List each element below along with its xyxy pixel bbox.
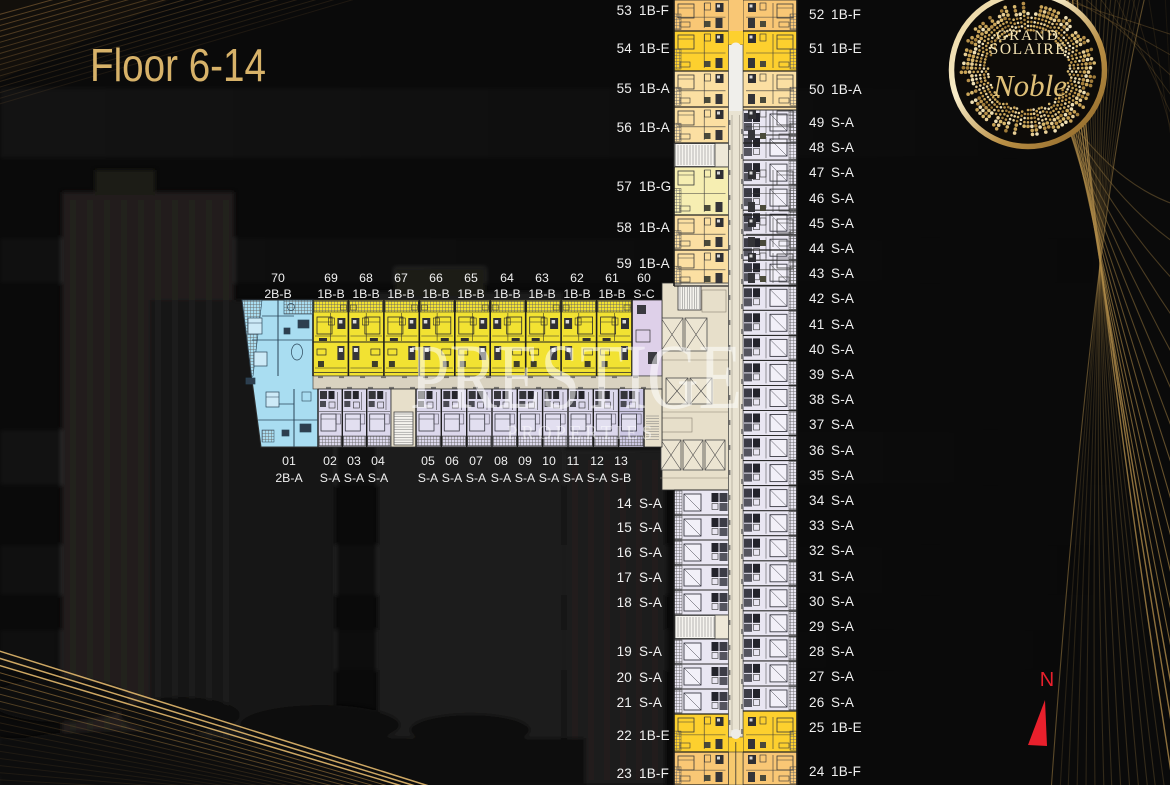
svg-text:S-A: S-A	[831, 191, 854, 206]
svg-text:32: 32	[809, 543, 824, 558]
svg-text:13: 13	[614, 454, 628, 468]
svg-text:34: 34	[809, 493, 825, 508]
svg-text:1B-A: 1B-A	[639, 256, 670, 271]
svg-text:Noble: Noble	[992, 68, 1067, 103]
svg-text:S-A: S-A	[831, 417, 854, 432]
svg-text:1B-B: 1B-B	[317, 287, 344, 301]
svg-text:1B-F: 1B-F	[639, 766, 669, 781]
svg-text:PROPERTIES: PROPERTIES	[507, 422, 656, 444]
svg-text:36: 36	[809, 443, 824, 458]
svg-text:SOLAIRE: SOLAIRE	[990, 41, 1067, 58]
svg-text:1B-A: 1B-A	[831, 82, 862, 97]
svg-text:37: 37	[809, 417, 824, 432]
svg-text:1B-A: 1B-A	[639, 220, 670, 235]
svg-text:S-C: S-C	[633, 287, 654, 301]
svg-text:14: 14	[617, 496, 633, 511]
svg-text:S-A: S-A	[831, 392, 854, 407]
svg-text:S-A: S-A	[831, 216, 854, 231]
svg-text:70: 70	[271, 271, 285, 285]
svg-text:N: N	[1040, 669, 1054, 691]
svg-text:S-A: S-A	[491, 471, 512, 485]
svg-text:1B-F: 1B-F	[831, 7, 861, 22]
svg-text:S-A: S-A	[831, 115, 854, 130]
svg-text:S-A: S-A	[831, 518, 854, 533]
svg-text:30: 30	[809, 594, 824, 609]
svg-text:48: 48	[809, 140, 824, 155]
svg-text:S-A: S-A	[639, 670, 662, 685]
svg-text:S-A: S-A	[639, 695, 662, 710]
svg-text:S-A: S-A	[442, 471, 463, 485]
svg-text:15: 15	[617, 520, 632, 535]
svg-text:S-A: S-A	[539, 471, 560, 485]
svg-text:S-A: S-A	[639, 545, 662, 560]
svg-text:S-A: S-A	[831, 543, 854, 558]
svg-text:63: 63	[535, 271, 549, 285]
svg-text:33: 33	[809, 518, 824, 533]
svg-text:26: 26	[809, 695, 824, 710]
svg-text:20: 20	[617, 670, 632, 685]
svg-text:10: 10	[542, 454, 556, 468]
svg-text:S-A: S-A	[831, 291, 854, 306]
svg-text:S-A: S-A	[466, 471, 487, 485]
svg-text:61: 61	[605, 271, 619, 285]
svg-text:11: 11	[567, 454, 580, 468]
svg-text:67: 67	[394, 271, 408, 285]
svg-text:S-A: S-A	[831, 619, 854, 634]
svg-text:S-A: S-A	[831, 644, 854, 659]
svg-text:S-A: S-A	[831, 342, 854, 357]
svg-text:S-A: S-A	[831, 594, 854, 609]
svg-text:PRESTIGE: PRESTIGE	[410, 326, 742, 429]
svg-text:S-A: S-A	[320, 471, 341, 485]
svg-text:S-A: S-A	[639, 644, 662, 659]
svg-text:S-A: S-A	[639, 570, 662, 585]
svg-text:S-A: S-A	[831, 443, 854, 458]
svg-text:09: 09	[518, 454, 532, 468]
svg-text:51: 51	[809, 41, 824, 56]
svg-text:38: 38	[809, 392, 824, 407]
svg-text:46: 46	[809, 191, 824, 206]
svg-text:1B-B: 1B-B	[598, 287, 625, 301]
svg-text:1B-B: 1B-B	[422, 287, 449, 301]
svg-text:05: 05	[421, 454, 435, 468]
svg-text:S-A: S-A	[831, 241, 854, 256]
svg-text:24: 24	[809, 764, 825, 779]
svg-text:55: 55	[617, 81, 632, 96]
svg-text:S-A: S-A	[831, 317, 854, 332]
svg-text:1B-F: 1B-F	[639, 3, 669, 18]
svg-text:S-A: S-A	[831, 468, 854, 483]
svg-text:S-A: S-A	[831, 165, 854, 180]
svg-text:06: 06	[445, 454, 459, 468]
svg-text:S-A: S-A	[831, 266, 854, 281]
svg-text:1B-E: 1B-E	[639, 728, 670, 743]
svg-text:17: 17	[617, 570, 632, 585]
svg-text:S-A: S-A	[831, 695, 854, 710]
svg-text:S-A: S-A	[639, 595, 662, 610]
svg-text:27: 27	[809, 669, 824, 684]
svg-text:45: 45	[809, 216, 824, 231]
svg-text:S-A: S-A	[831, 569, 854, 584]
svg-text:59: 59	[617, 256, 632, 271]
svg-text:02: 02	[323, 454, 337, 468]
svg-text:56: 56	[617, 120, 632, 135]
svg-text:64: 64	[500, 271, 514, 285]
svg-text:35: 35	[809, 468, 824, 483]
svg-text:S-A: S-A	[344, 471, 365, 485]
svg-text:S-A: S-A	[639, 520, 662, 535]
svg-text:19: 19	[617, 644, 632, 659]
svg-text:S-A: S-A	[831, 140, 854, 155]
svg-text:25: 25	[809, 720, 824, 735]
svg-text:54: 54	[617, 41, 633, 56]
svg-text:S-A: S-A	[587, 471, 608, 485]
svg-text:04: 04	[371, 454, 385, 468]
svg-text:S-A: S-A	[831, 669, 854, 684]
svg-text:22: 22	[617, 728, 632, 743]
svg-text:1B-F: 1B-F	[831, 764, 861, 779]
svg-text:S-B: S-B	[611, 471, 632, 485]
svg-text:1B-E: 1B-E	[831, 720, 862, 735]
svg-text:1B-B: 1B-B	[563, 287, 590, 301]
svg-text:68: 68	[359, 271, 373, 285]
svg-text:12: 12	[590, 454, 604, 468]
svg-text:57: 57	[617, 179, 632, 194]
svg-text:1B-G: 1B-G	[639, 179, 671, 194]
svg-text:23: 23	[617, 766, 632, 781]
svg-text:1B-E: 1B-E	[831, 41, 862, 56]
svg-text:1B-E: 1B-E	[639, 41, 670, 56]
svg-text:69: 69	[324, 271, 338, 285]
svg-text:53: 53	[617, 3, 632, 18]
svg-text:03: 03	[347, 454, 361, 468]
svg-text:1B-B: 1B-B	[352, 287, 379, 301]
svg-text:39: 39	[809, 367, 824, 382]
svg-text:18: 18	[617, 595, 632, 610]
svg-text:60: 60	[637, 271, 651, 285]
svg-text:S-A: S-A	[639, 496, 662, 511]
svg-text:43: 43	[809, 266, 824, 281]
svg-text:58: 58	[617, 220, 632, 235]
svg-text:S-A: S-A	[515, 471, 536, 485]
svg-text:21: 21	[617, 695, 632, 710]
svg-text:S-A: S-A	[563, 471, 584, 485]
svg-text:16: 16	[617, 545, 632, 560]
svg-text:40: 40	[809, 342, 824, 357]
svg-text:1B-B: 1B-B	[457, 287, 484, 301]
svg-text:62: 62	[570, 271, 584, 285]
svg-text:2B-A: 2B-A	[275, 471, 303, 485]
svg-text:42: 42	[809, 291, 824, 306]
svg-text:50: 50	[809, 82, 824, 97]
svg-text:44: 44	[809, 241, 825, 256]
svg-text:S-A: S-A	[368, 471, 389, 485]
svg-text:S-A: S-A	[831, 367, 854, 382]
svg-text:1B-B: 1B-B	[493, 287, 520, 301]
svg-text:47: 47	[809, 165, 824, 180]
svg-text:49: 49	[809, 115, 824, 130]
svg-text:2B-B: 2B-B	[264, 287, 291, 301]
svg-text:1B-B: 1B-B	[528, 287, 555, 301]
svg-text:41: 41	[809, 317, 824, 332]
svg-text:08: 08	[494, 454, 508, 468]
svg-text:1B-A: 1B-A	[639, 81, 670, 96]
svg-text:66: 66	[429, 271, 443, 285]
svg-text:31: 31	[809, 569, 824, 584]
svg-text:28: 28	[809, 644, 824, 659]
svg-text:1B-A: 1B-A	[639, 120, 670, 135]
svg-text:1B-B: 1B-B	[387, 287, 414, 301]
svg-text:S-A: S-A	[418, 471, 439, 485]
svg-text:52: 52	[809, 7, 824, 22]
svg-text:07: 07	[469, 454, 483, 468]
svg-text:65: 65	[464, 271, 478, 285]
svg-text:01: 01	[282, 454, 296, 468]
svg-text:Floor 6-14: Floor 6-14	[90, 39, 266, 91]
svg-text:29: 29	[809, 619, 824, 634]
svg-text:S-A: S-A	[831, 493, 854, 508]
